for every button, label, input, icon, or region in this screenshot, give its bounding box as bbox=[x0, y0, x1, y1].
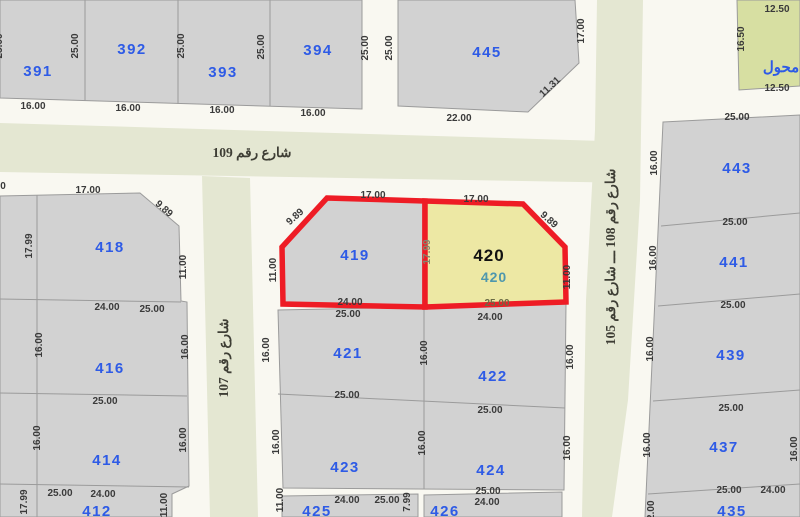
parcel-416-label: 416 bbox=[95, 360, 125, 377]
dim-label: 16.00 bbox=[20, 101, 45, 112]
parcel-421-label: 421 bbox=[333, 345, 363, 362]
dim-label: 24.00 bbox=[337, 297, 362, 308]
dim-label: 16.00 bbox=[261, 337, 272, 362]
parcel-420-label: 420 bbox=[473, 246, 504, 265]
dim-label: 24.00 bbox=[90, 489, 115, 500]
dim-label: 25.00 bbox=[256, 34, 267, 59]
dim-label: 11.00 bbox=[159, 492, 170, 517]
dim-label: 25.00 bbox=[384, 35, 395, 60]
dim-label: 22.00 bbox=[446, 113, 471, 124]
cadastral-map: شارع رقم 109 شارع رقم 107 شارع رقم 108 ـ… bbox=[0, 0, 800, 517]
dim-label: 16.00 bbox=[645, 336, 656, 361]
dim-label: 25.00 bbox=[722, 217, 747, 228]
block-421-424[interactable] bbox=[278, 304, 566, 490]
parcel-392-label: 392 bbox=[117, 41, 147, 58]
dim-label: 25.00 bbox=[335, 309, 360, 320]
dim-label: 16.00 bbox=[178, 427, 189, 452]
dim-label: 16.00 bbox=[562, 435, 573, 460]
street-109-label: شارع رقم 109 bbox=[213, 145, 292, 161]
parcel-393-label: 393 bbox=[208, 64, 238, 81]
parcel-424-label: 424 bbox=[476, 462, 506, 479]
dim-label: 25.00 bbox=[0, 33, 5, 58]
parcel-445-label: 445 bbox=[472, 44, 502, 61]
dim-label: 12.50 bbox=[764, 83, 789, 94]
parcel-transformer-label: محول bbox=[763, 59, 799, 76]
dim-label: 17.00 bbox=[576, 18, 587, 43]
dim-label: 16.00 bbox=[115, 103, 140, 114]
dim-label: 24.00 bbox=[477, 312, 502, 323]
parcel-418-label: 418 bbox=[95, 239, 125, 256]
parcel-439-label: 439 bbox=[716, 347, 746, 364]
parcel-441-label: 441 bbox=[719, 254, 749, 271]
dim-label: 16.00 bbox=[649, 150, 660, 175]
dim-label: 25.00 bbox=[374, 495, 399, 506]
dim-label: 25.00 bbox=[70, 33, 81, 58]
parcel-423-label: 423 bbox=[330, 459, 360, 476]
dim-label: 25.00 bbox=[139, 304, 164, 315]
dim-label: 11.00 bbox=[562, 264, 573, 289]
dim-label: 16.00 bbox=[34, 332, 45, 357]
dim-label: 11.00 bbox=[275, 487, 286, 512]
dim-label: 24.00 bbox=[760, 485, 785, 496]
dim-label: 12.50 bbox=[764, 4, 789, 15]
parcel-394-label: 394 bbox=[303, 42, 333, 59]
dim-label: 17.00 bbox=[75, 185, 100, 196]
dim-label: 0 bbox=[0, 181, 6, 192]
dim-label: 11.00 bbox=[178, 254, 189, 279]
dim-label: 17.00 bbox=[463, 194, 488, 205]
parcel-419-label: 419 bbox=[340, 247, 370, 264]
parcel-425-label: 425 bbox=[302, 503, 332, 517]
parcel-414-label: 414 bbox=[92, 452, 122, 469]
dim-label: 25.00 bbox=[477, 405, 502, 416]
dim-label: 25.00 bbox=[47, 488, 72, 499]
dim-label: 25.00 bbox=[176, 33, 187, 58]
dim-label: 16.00 bbox=[419, 340, 430, 365]
dim-label: 17.99 bbox=[24, 233, 35, 258]
parcel-435-label: 435 bbox=[717, 503, 747, 517]
dim-label: 25.00 bbox=[475, 486, 500, 497]
dim-label: 17.99 bbox=[422, 239, 433, 264]
street-107-label: شارع رقم 107 bbox=[216, 319, 232, 398]
dim-label: 16.50 bbox=[736, 26, 747, 51]
dim-label: 16.00 bbox=[209, 105, 234, 116]
parcel-420-sub-label: 420 bbox=[481, 269, 507, 285]
dim-label: 24.00 bbox=[94, 302, 119, 313]
dim-label: 16.00 bbox=[648, 245, 659, 270]
dim-label: 24.00 bbox=[334, 495, 359, 506]
dim-label: 25.00 bbox=[718, 403, 743, 414]
dim-label: 25.00 bbox=[720, 300, 745, 311]
dim-label: 11.00 bbox=[268, 257, 279, 282]
parcel-391-label: 391 bbox=[23, 63, 53, 80]
parcel-437-label: 437 bbox=[709, 439, 739, 456]
dim-label: 24.00 bbox=[474, 497, 499, 508]
dim-label: 25.00 bbox=[334, 390, 359, 401]
dim-label: 17.99 bbox=[19, 489, 30, 514]
dim-label: 25.00 bbox=[716, 485, 741, 496]
dim-label: 7.99 bbox=[402, 492, 413, 512]
dim-label: 25.00 bbox=[724, 112, 749, 123]
dim-label: 16.00 bbox=[271, 429, 282, 454]
street-108-105-label: شارع رقم 108 ـــ شارع رقم 105 bbox=[603, 169, 619, 346]
dim-label: 17.00 bbox=[360, 190, 385, 201]
dim-label: 16.00 bbox=[642, 432, 653, 457]
dim-label: 12.00 bbox=[646, 500, 657, 517]
parcel-412-label: 412 bbox=[82, 503, 112, 517]
dim-label: 25.00 bbox=[484, 298, 509, 309]
parcel-426-label: 426 bbox=[430, 503, 460, 517]
dim-label: 16.00 bbox=[417, 430, 428, 455]
dim-label: 16.00 bbox=[180, 334, 191, 359]
dim-label: 16.00 bbox=[300, 108, 325, 119]
dim-label: 16.00 bbox=[565, 344, 576, 369]
dim-label: 25.00 bbox=[92, 396, 117, 407]
dim-label: 16.00 bbox=[789, 436, 800, 461]
parcel-422-label: 422 bbox=[478, 368, 508, 385]
parcel-443-label: 443 bbox=[722, 160, 752, 177]
map-canvas: شارع رقم 109 شارع رقم 107 شارع رقم 108 ـ… bbox=[0, 0, 800, 517]
dim-label: 16.00 bbox=[32, 425, 43, 450]
dim-label: 25.00 bbox=[360, 35, 371, 60]
